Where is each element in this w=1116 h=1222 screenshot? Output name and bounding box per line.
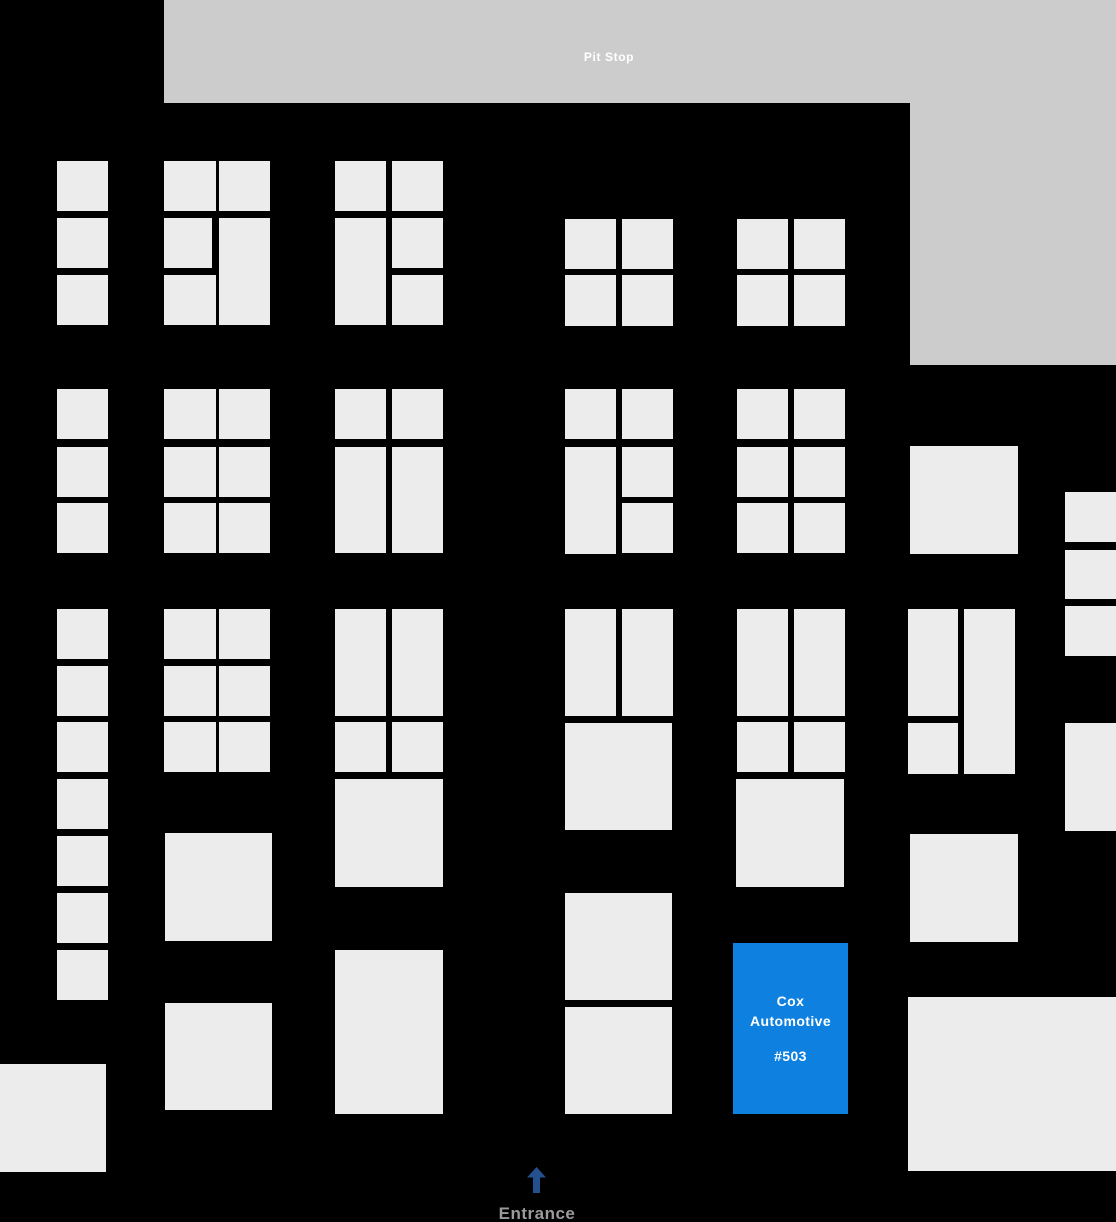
booth[interactable] <box>335 389 386 439</box>
booth[interactable] <box>622 219 673 269</box>
booth[interactable] <box>737 219 788 269</box>
booth[interactable] <box>57 609 108 659</box>
booth[interactable] <box>335 950 443 1114</box>
booth[interactable] <box>164 503 216 553</box>
booth[interactable] <box>737 275 788 326</box>
booth[interactable] <box>565 275 616 326</box>
booth[interactable] <box>1065 606 1116 656</box>
booth[interactable] <box>737 389 788 439</box>
booth[interactable] <box>565 1007 672 1114</box>
booth[interactable] <box>57 836 108 886</box>
booth[interactable] <box>622 503 673 553</box>
booth[interactable] <box>165 1003 272 1110</box>
booth[interactable] <box>57 950 108 1000</box>
booth[interactable] <box>908 609 958 716</box>
cox-booth-number: #503 <box>774 1046 807 1066</box>
booth[interactable] <box>335 447 386 553</box>
booth[interactable] <box>57 503 108 553</box>
booth[interactable] <box>57 161 108 211</box>
booth[interactable] <box>910 834 1018 942</box>
booth[interactable] <box>565 723 672 830</box>
booth[interactable] <box>1065 550 1116 599</box>
booth[interactable] <box>0 1064 106 1172</box>
booth[interactable] <box>335 218 386 325</box>
booth[interactable] <box>392 722 443 772</box>
booth[interactable] <box>57 218 108 268</box>
booth[interactable] <box>964 609 1015 774</box>
booth[interactable] <box>1065 723 1116 831</box>
booth[interactable] <box>565 219 616 269</box>
booth[interactable] <box>737 609 788 716</box>
booth[interactable] <box>622 447 673 497</box>
booth[interactable] <box>57 722 108 772</box>
booth[interactable] <box>565 447 616 554</box>
booth[interactable] <box>164 666 216 716</box>
booth[interactable] <box>57 389 108 439</box>
booth[interactable] <box>57 893 108 943</box>
booth[interactable] <box>164 447 216 497</box>
booth[interactable] <box>335 161 386 211</box>
booth[interactable] <box>392 161 443 211</box>
booth[interactable] <box>794 503 845 553</box>
floor-plan: Pit Stop Cox Automotive #503 Entrance <box>0 0 1116 1222</box>
booth[interactable] <box>164 161 216 211</box>
booth[interactable] <box>57 666 108 716</box>
booth[interactable] <box>335 609 386 716</box>
booth[interactable] <box>219 218 270 325</box>
booth[interactable] <box>1065 492 1116 542</box>
booth[interactable] <box>164 218 212 268</box>
booth[interactable] <box>794 447 845 497</box>
booth[interactable] <box>57 275 108 325</box>
booth[interactable] <box>57 447 108 497</box>
booth[interactable] <box>794 219 845 269</box>
booth[interactable] <box>737 447 788 497</box>
booth[interactable] <box>164 389 216 439</box>
booth[interactable] <box>622 609 673 716</box>
entrance-arrow-icon <box>527 1167 546 1193</box>
booth[interactable] <box>565 609 616 716</box>
booth[interactable] <box>908 997 1116 1171</box>
booth[interactable] <box>565 389 616 439</box>
booth[interactable] <box>736 779 844 887</box>
booth[interactable] <box>219 389 270 439</box>
booth[interactable] <box>164 275 216 325</box>
booth[interactable] <box>164 609 216 659</box>
booth[interactable] <box>219 722 270 772</box>
booth[interactable] <box>622 389 673 439</box>
booth[interactable] <box>794 609 845 716</box>
booth[interactable] <box>57 779 108 829</box>
booth[interactable] <box>219 447 270 497</box>
booth[interactable] <box>335 779 443 887</box>
pit-stop-banner <box>164 0 1116 103</box>
booth[interactable] <box>794 275 845 326</box>
booth[interactable] <box>219 161 270 211</box>
cox-booth-name: Cox Automotive <box>741 991 841 1032</box>
booth[interactable] <box>908 723 958 774</box>
booth[interactable] <box>392 609 443 716</box>
booth[interactable] <box>794 722 845 772</box>
booth[interactable] <box>164 722 216 772</box>
booth[interactable] <box>392 447 443 553</box>
pit-stop-label: Pit Stop <box>584 50 634 64</box>
booth[interactable] <box>165 833 272 941</box>
booth-cox-automotive[interactable]: Cox Automotive #503 <box>733 943 848 1114</box>
booth[interactable] <box>335 722 386 772</box>
booth[interactable] <box>622 275 673 326</box>
booth[interactable] <box>565 893 672 1000</box>
booth[interactable] <box>392 275 443 325</box>
booth[interactable] <box>910 446 1018 554</box>
booth[interactable] <box>392 218 443 268</box>
booth[interactable] <box>219 666 270 716</box>
booth[interactable] <box>737 503 788 553</box>
booth[interactable] <box>219 503 270 553</box>
entrance-label: Entrance <box>499 1204 576 1222</box>
booth[interactable] <box>219 609 270 659</box>
booth[interactable] <box>794 389 845 439</box>
booth[interactable] <box>737 722 788 772</box>
pit-stop-right-block <box>910 103 1116 365</box>
booth[interactable] <box>392 389 443 439</box>
